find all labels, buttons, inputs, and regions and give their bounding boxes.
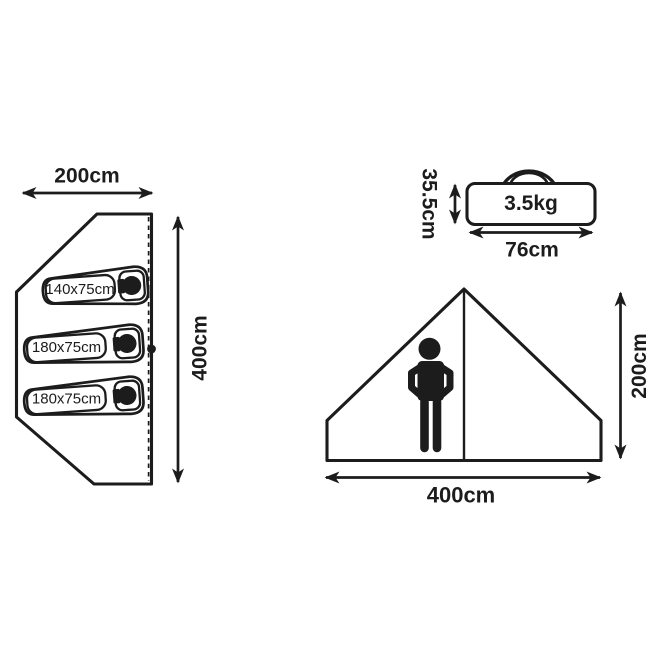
tent-dimensions-diagram: 140x75cm 180x75cm 180x75cm 200cm 400c bbox=[0, 0, 665, 665]
front-view: 200cm 400cm bbox=[326, 289, 651, 508]
bed-size-label: 180x75cm bbox=[32, 391, 101, 408]
front-height-dimension: 200cm bbox=[621, 293, 652, 458]
floorplan-length-label: 400cm bbox=[189, 315, 212, 380]
door-pull-dot bbox=[147, 345, 156, 354]
front-width-label: 400cm bbox=[427, 483, 496, 508]
front-height-label: 200cm bbox=[628, 333, 651, 398]
floor-plan-view: 140x75cm 180x75cm 180x75cm 200cm 400c bbox=[17, 165, 212, 485]
carry-bag-view: 3.5kg 35.5cm 76cm bbox=[418, 168, 596, 261]
bed-size-label: 140x75cm bbox=[45, 281, 114, 298]
floorplan-width-label: 200cm bbox=[54, 165, 119, 188]
floorplan-width-dimension: 200cm bbox=[23, 165, 152, 194]
carry-bag-height-dimension: 35.5cm bbox=[418, 168, 456, 239]
carry-bag-weight-label: 3.5kg bbox=[504, 192, 558, 215]
carry-bag-height-label: 35.5cm bbox=[418, 168, 441, 239]
carry-bag-width-label: 76cm bbox=[505, 239, 559, 262]
bed-size-label: 180x75cm bbox=[32, 339, 101, 356]
front-width-dimension: 400cm bbox=[326, 478, 600, 508]
person-head bbox=[419, 338, 441, 360]
floorplan-length-dimension: 400cm bbox=[178, 217, 212, 482]
carry-bag-width-dimension: 76cm bbox=[470, 233, 592, 262]
diagram-canvas: 140x75cm 180x75cm 180x75cm 200cm 400c bbox=[0, 0, 665, 665]
